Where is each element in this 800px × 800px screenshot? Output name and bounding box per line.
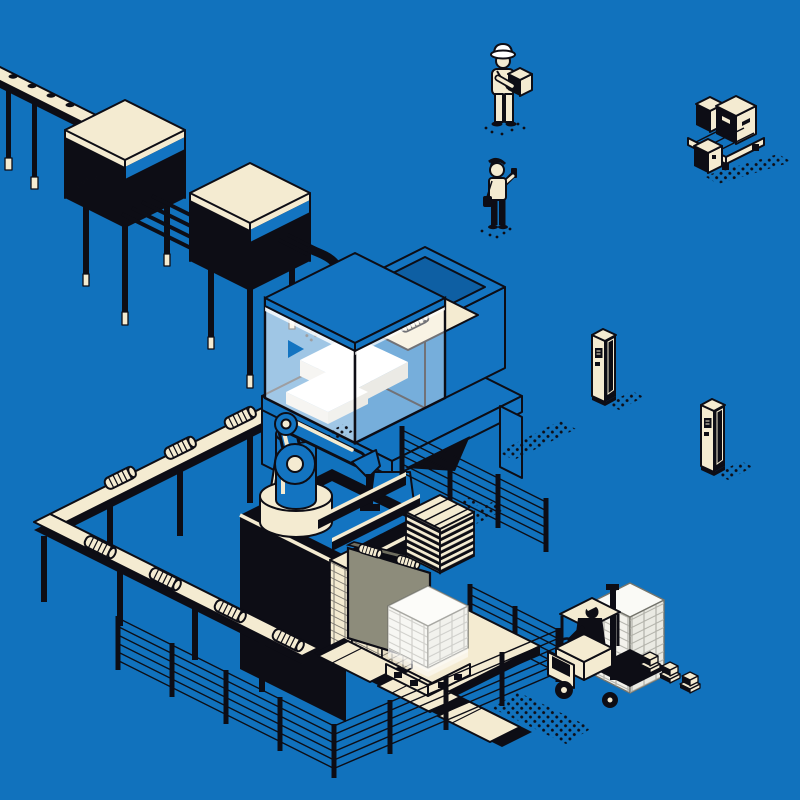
box-large — [716, 96, 756, 144]
factory-illustration-stage — [0, 0, 800, 800]
hip-bag — [483, 196, 492, 207]
factory-illustration — [0, 0, 800, 800]
box-small — [694, 139, 722, 173]
empty-pallet-stack — [406, 495, 474, 573]
